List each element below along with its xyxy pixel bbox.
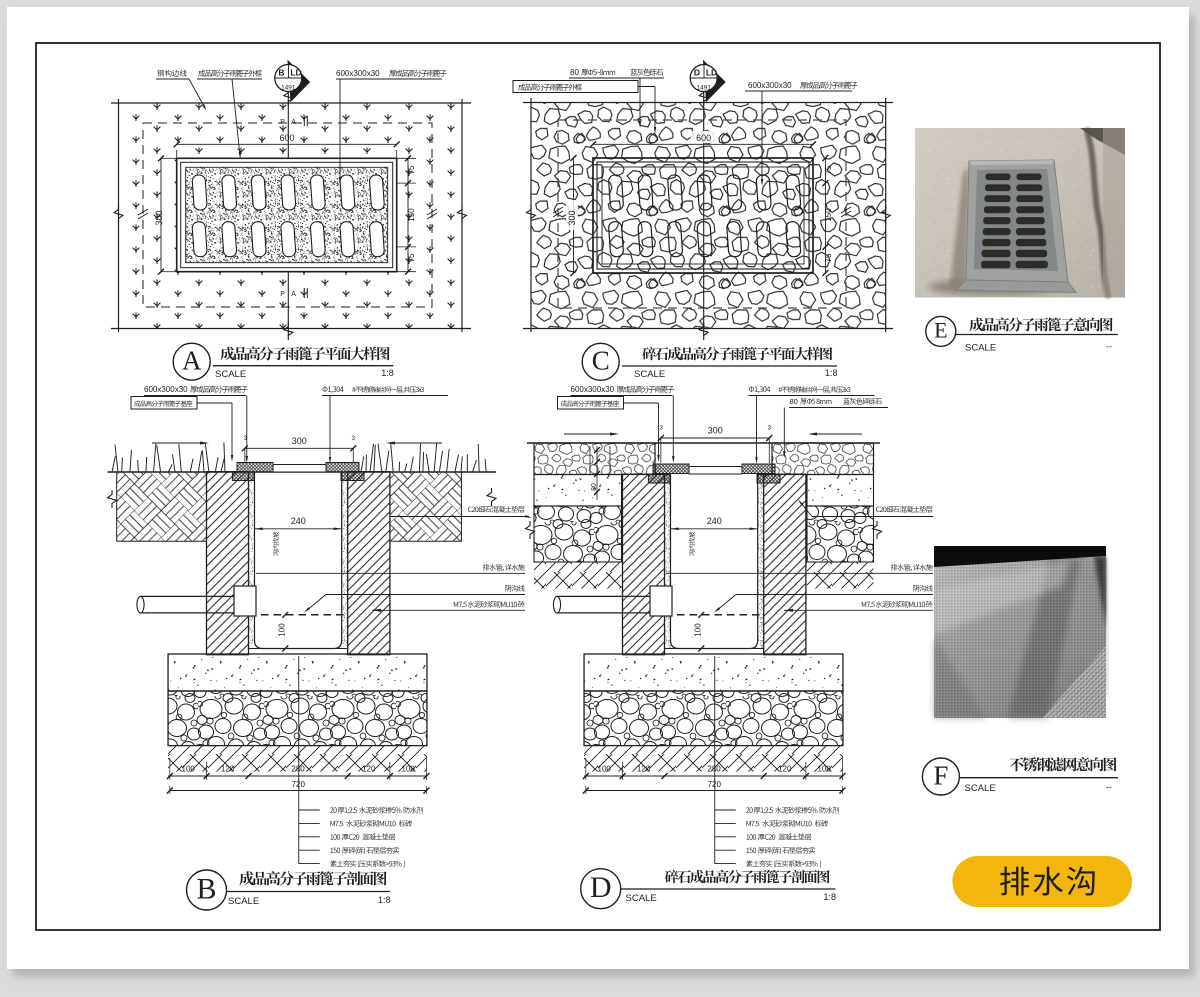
svg-text:100: 100 <box>598 765 612 774</box>
svg-text:80: 80 <box>790 397 798 406</box>
svg-text:A: A <box>291 119 296 126</box>
svg-text:600: 600 <box>696 133 711 143</box>
svg-text:1491: 1491 <box>696 85 711 92</box>
svg-text:E: E <box>934 318 947 343</box>
svg-text:LD: LD <box>706 68 717 78</box>
svg-text:120: 120 <box>778 765 792 774</box>
svg-text:80: 80 <box>591 483 598 491</box>
svg-text:600: 600 <box>279 133 294 143</box>
svg-text:SCALE: SCALE <box>228 896 259 907</box>
svg-text:150: 150 <box>824 208 833 222</box>
svg-text:300: 300 <box>708 426 723 436</box>
svg-text:A: A <box>291 291 296 298</box>
svg-text:75: 75 <box>407 253 416 262</box>
svg-text:600x300x30: 600x300x30 <box>336 69 380 78</box>
svg-text:75: 75 <box>407 165 416 174</box>
svg-text:300: 300 <box>292 436 307 446</box>
svg-text:SCALE: SCALE <box>634 369 665 380</box>
svg-text:--: -- <box>1106 782 1112 792</box>
svg-text:P: P <box>280 119 285 126</box>
svg-text:240: 240 <box>707 516 722 526</box>
svg-text:1:8: 1:8 <box>378 895 391 905</box>
svg-text:120: 120 <box>637 765 651 774</box>
svg-text:B: B <box>196 872 216 905</box>
svg-text:120: 120 <box>362 765 376 774</box>
svg-text:--: -- <box>1106 342 1112 352</box>
svg-text:1:8: 1:8 <box>824 892 837 902</box>
svg-text:SCALE: SCALE <box>626 893 657 904</box>
svg-text:D: D <box>590 871 612 904</box>
svg-text:1:8: 1:8 <box>825 368 838 378</box>
svg-text:1:8: 1:8 <box>381 368 394 378</box>
svg-text:C: C <box>592 346 610 376</box>
svg-text:SCALE: SCALE <box>215 369 246 380</box>
svg-text:75: 75 <box>824 165 833 174</box>
svg-text:100: 100 <box>277 623 286 637</box>
svg-text:SCALE: SCALE <box>965 343 996 354</box>
svg-text:B: B <box>278 68 284 78</box>
svg-text:1491: 1491 <box>281 85 296 92</box>
svg-text:100: 100 <box>693 623 702 637</box>
svg-text:600x300x30: 600x300x30 <box>144 385 188 394</box>
svg-text:300: 300 <box>154 210 164 225</box>
svg-text:100: 100 <box>401 765 415 774</box>
svg-text:A: A <box>182 345 202 375</box>
svg-text:600x300x30: 600x300x30 <box>571 385 615 394</box>
svg-text:SCALE: SCALE <box>965 783 996 794</box>
svg-text:100: 100 <box>817 765 831 774</box>
svg-text:150: 150 <box>407 208 416 222</box>
svg-text:D: D <box>694 68 700 78</box>
svg-text:P: P <box>280 291 285 298</box>
svg-text:100: 100 <box>182 765 196 774</box>
svg-text:300: 300 <box>567 210 577 225</box>
svg-text:120: 120 <box>221 765 235 774</box>
svg-text:600x300x30: 600x300x30 <box>748 81 792 90</box>
svg-text:240: 240 <box>291 516 306 526</box>
svg-text:80: 80 <box>570 68 579 77</box>
svg-text:75: 75 <box>824 253 833 262</box>
svg-text:F: F <box>933 760 948 790</box>
svg-text:LD: LD <box>290 68 301 78</box>
